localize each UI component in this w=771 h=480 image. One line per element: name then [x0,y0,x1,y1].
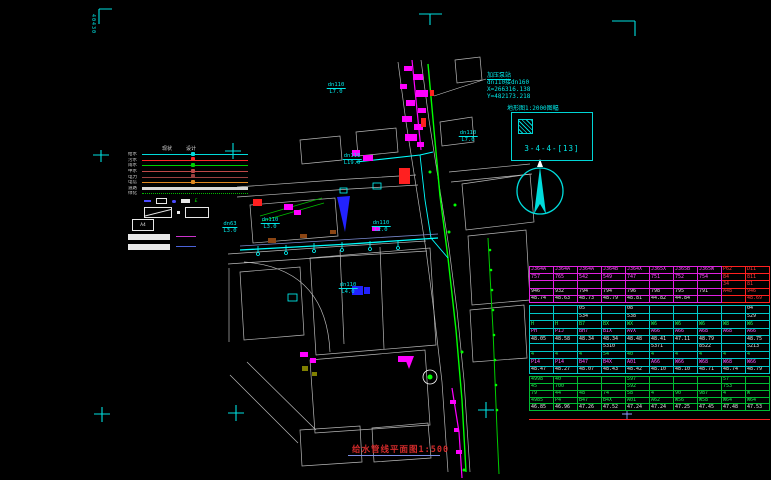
table-cell: 4 [650,351,674,359]
table-cell: 44 [554,390,578,397]
table-cell: 592 [626,384,650,391]
table-cell: J365B [674,267,698,274]
telecom-marks [302,366,317,376]
table-cell: 4 [746,351,770,359]
table-cell: P14 [554,359,578,367]
utility-lines [412,60,462,478]
table-cell [722,336,746,344]
table-cell [578,377,602,384]
table-cell [578,384,602,391]
pump-station-note: 加压泵站 dn110接dn160 X=266316.138 Y=482173.2… [487,72,530,100]
table-cell: 751 [650,274,674,281]
table-row: J364AJ364AJ364AJ364BJ364XJ365XJ365BJ365W… [530,267,770,274]
pipe-annotation: dn63L3.0 [222,221,237,234]
table-cell: 47.26 [578,404,602,411]
table-cell: 48.75 [746,336,770,344]
alert-blocks [253,90,434,206]
table-cell: W68 [722,359,746,367]
table-cell: 44.84 [674,295,698,302]
table-cell [554,313,578,321]
table-cell: 794 [578,288,602,295]
table-cell: W [746,390,770,397]
node-block-1: J364AJ364AJ364AJ364BJ364XJ365XJ365BJ365W… [529,266,770,303]
table-cell [674,343,698,351]
legend-line-sample [142,187,248,190]
table-cell: 48.41 [650,336,674,344]
table-cell [722,343,746,351]
table-cell: 48.07 [578,366,602,374]
table-cell: 47.45 [698,404,722,411]
legend-line-mark [191,180,195,184]
table-cell: 946 [530,288,554,295]
table-cell: 757 [530,274,554,281]
table-cell: B7 [578,321,602,329]
table-cell: W56 [674,397,698,404]
cad-viewport: 40430 现状 设计 给水污水雨水中水电力电信道路绿化 £ A4 [0,0,771,480]
table-cell: W66 [674,359,698,367]
table-cell: A66 [650,359,674,367]
table-cell: 90 [674,390,698,397]
pipe-size-label: dn110 [339,282,358,289]
table-cell: 46.85 [530,404,554,411]
table-cell: 57 [722,377,746,384]
table-cell: 48.10 [674,366,698,374]
table-cell: 48.34 [578,336,602,344]
sheet-reference: 3-4-4-[13] [512,144,592,153]
table-cell [722,313,746,321]
table-row: P14P14B47B4XA01A66W66W68W68W66 [530,359,770,367]
table-cell [674,384,698,391]
pipe-size-label: dn110 [261,217,280,224]
drawing-title: 给水管线平面图1:500 [352,443,449,455]
utility-clusters [284,66,462,454]
table-cell: BH7 [578,328,602,336]
pump-note-size: dn110接dn160 [487,79,529,86]
table-cell [530,343,554,351]
manhole-symbol [423,370,437,384]
pipe-length-label: L19.0 [343,160,362,166]
table-cell [650,305,674,313]
table-cell: W68 [698,359,722,367]
a4-frame-icon: A4 [132,219,154,231]
table-cell [602,384,626,391]
table-cell: 48.42 [626,366,650,374]
table-cell: 48.73 [578,295,602,302]
table-cell: 48.79 [602,295,626,302]
table-cell: 48.58 [554,336,578,344]
legend-label: 电力 [128,175,142,180]
table-cell: 05 [578,305,602,313]
table-cell [722,305,746,313]
table-cell: 4 [674,351,698,359]
legend-label: 道路 [128,186,142,191]
table-cell: 747 [626,274,650,281]
node-block-2: 050804534538529HHB7BXWXW6W6W6W8W6PHPIJBH… [529,305,770,374]
table-cell: W6 [674,321,698,329]
pipe-length-label: L7.0 [327,89,346,95]
table-cell: A68 [698,328,722,336]
table-cell: 946 [746,288,770,295]
legend-line-sample [142,160,248,161]
table-cell: A01 [626,359,650,367]
node-elevation-table: J364AJ364AJ364AJ364BJ364XJ365XJ365BJ365W… [529,266,770,411]
table-cell: 538 [626,313,650,321]
table-cell [698,313,722,321]
table-cell: J364B [602,267,626,274]
table-cell: A68 [722,328,746,336]
legend-line-sample [142,182,248,183]
pipe-length-label: L3.0 [222,228,237,234]
table-bottom-rule [529,419,770,420]
table-cell: 44.82 [650,295,674,302]
legend-line-sample [142,165,248,166]
north-arrow [517,159,563,214]
table-cell: AVX [626,328,650,336]
table-cell: 796 [626,288,650,295]
table-cell: 48.79 [698,336,722,344]
table-cell [650,384,674,391]
table-cell: PIJ [554,328,578,336]
table-row: 48.0548.5848.3448.3448.4848.4147.1148.79… [530,336,770,344]
table-cell [698,281,722,288]
table-cell: 74 [602,390,626,397]
table-cell [746,377,770,384]
legend-line-mark [191,174,195,178]
table-cell: 700 [554,384,578,391]
legend-line-sample [142,177,248,178]
table-cell: D11 [746,267,770,274]
table-cell [602,305,626,313]
table-cell: 932 [554,288,578,295]
table-cell [698,295,722,302]
table-cell [626,343,650,351]
table-cell: W8 [722,321,746,329]
table-cell [650,377,674,384]
table-cell: 54 [602,351,626,359]
node-block-3: 499840597574570059275379444874584909874W… [529,376,770,411]
table-row: 48.7448.6348.7348.7948.8144.8244.8448.69 [530,295,770,302]
table-row: 79444874584909874W [530,390,770,397]
table-cell: 597 [626,377,650,384]
table-cell: 8522 [698,343,722,351]
valve-icon [144,200,151,202]
table-cell: 79 [530,390,554,397]
legend-line-sample [142,171,248,172]
table-cell [722,295,746,302]
table-cell: J364X [626,267,650,274]
table-cell: B47 [578,397,602,404]
table-row: 75776554254974775175275484811 [530,274,770,281]
table-cell: 48.74 [722,366,746,374]
table-cell: 4 [722,351,746,359]
table-cell: W66 [746,359,770,367]
node-icon [172,200,176,204]
table-row: HHB7BXWXW6W6W6W8W6 [530,321,770,329]
pipe-annotation: dn110L4.0 [339,282,358,295]
table-cell: 5371 [650,343,674,351]
blue-line-sample [176,246,196,247]
legend-label: 给水 [128,152,142,157]
table-cell: P4 [554,397,578,404]
table-cell: 4 [530,351,554,359]
table-cell: B47 [578,359,602,367]
table-cell: BIX [602,328,626,336]
table-cell: 40 [554,377,578,384]
pipe-size-label: dn63 [222,221,237,228]
title-underline [348,455,440,456]
water-main-lines [260,64,499,474]
table-cell: J364A [554,267,578,274]
table-cell: W64 [746,397,770,404]
legend-line-mark [191,169,195,173]
pipe-size-label: dn110 [372,220,391,227]
pipe-length-label: L7.0 [459,137,478,143]
legend: 现状 设计 给水污水雨水中水电力电信道路绿化 £ A4 [128,145,248,252]
pump-note-x: X=266316.138 [487,86,530,93]
table-cell: 48.81 [626,295,650,302]
scale-bar [128,234,170,240]
legend-col-existing: 现状 [162,145,172,152]
table-cell [602,281,626,288]
table-row: 444544044444 [530,351,770,359]
table-cell [530,281,554,288]
table-cell: 752 [674,274,698,281]
table-row: 48.4748.2748.0748.4348.4248.1048.1048.71… [530,366,770,374]
legend-column-headers: 现状 设计 [128,145,248,152]
table-cell: 5213 [746,343,770,351]
table-row: PHPIJBH7BIXAVXA66A66A68A68A66 [530,328,770,336]
table-cell: W6 [698,321,722,329]
table-cell: J365X [650,267,674,274]
table-cell: 794 [602,288,626,295]
table-cell [674,281,698,288]
table-cell: 48.34 [602,336,626,344]
sheet-key-box: 3-4-4-[13] [511,112,593,161]
table-cell [674,377,698,384]
table-cell: J364A [530,267,554,274]
table-cell: 811 [746,274,770,281]
table-row: 534538529 [530,313,770,321]
table-cell: 48.10 [650,366,674,374]
legend-bar-row-2 [128,242,248,252]
pipe-annotation: dn110L7.0 [459,130,478,143]
chamber-icon [181,199,190,203]
table-cell: A66 [674,328,698,336]
legend-label: 绿化 [128,191,142,196]
scale-bar [128,244,170,250]
table-cell [650,281,674,288]
table-cell: 58 [626,390,650,397]
table-cell: WX [626,321,650,329]
table-cell [602,313,626,321]
table-cell: 4 [698,351,722,359]
table-cell: 47.11 [674,336,698,344]
table-cell [650,313,674,321]
table-cell: 48.47 [530,366,554,374]
table-cell [578,343,602,351]
table-cell: 48.63 [554,295,578,302]
legend-line-mark [191,157,195,161]
table-cell [626,281,650,288]
table-cell [554,305,578,313]
pipe-length-label: L4.0 [339,289,358,295]
table-cell: 754 [698,274,722,281]
table-cell [698,377,722,384]
table-cell: A62 [650,397,674,404]
table-cell: 84 [722,274,746,281]
table-cell: 48 [578,390,602,397]
table-cell: BX [602,321,626,329]
table-cell [698,305,722,313]
table-row: 050804 [530,305,770,313]
table-cell: 48.69 [746,295,770,302]
table-cell: 48.79 [746,366,770,374]
table-cell: H [554,321,578,329]
table-cell: B4X [602,397,626,404]
table-cell: 542 [578,274,602,281]
legend-label: 中水 [128,169,142,174]
legend-line-mark [191,163,195,167]
table-cell: A66 [746,328,770,336]
sheet-frame-label: 40430 [90,14,96,34]
pipe-annotation: dn110L7.0 [327,82,346,95]
table-cell: 549 [602,274,626,281]
table-cell: 534 [578,313,602,321]
pump-note-y: Y=482173.218 [487,93,530,100]
table-cell: W6 [746,321,770,329]
legend-line-sample [142,154,248,155]
table-cell: 48.27 [554,366,578,374]
pipe-annotation: dn110L3.0 [261,217,280,230]
table-cell: W6 [650,321,674,329]
table-row: 4985P4B47B4XA01A62W56W58W64W64 [530,397,770,404]
table-cell: 47.24 [650,404,674,411]
table-cell: 04 [746,305,770,313]
magenta-line-sample [176,236,196,237]
table-cell [530,313,554,321]
table-cell [530,305,554,313]
legend-symbol-row: £ [128,197,248,206]
table-cell: 529 [746,313,770,321]
legend-label: 电信 [128,180,142,185]
table-cell: 795 [674,288,698,295]
table-cell: 81 [746,281,770,288]
pipe-length-label: L2.0 [372,227,391,233]
table-cell: 765 [554,274,578,281]
table-cell: 4 [578,351,602,359]
table-cell: 47.52 [602,404,626,411]
legend-slope-row [128,206,248,219]
table-cell: A48 [722,288,746,295]
table-cell: 48.48 [626,336,650,344]
table-cell [674,313,698,321]
table-cell: 4 [722,390,746,397]
table-cell: 47.53 [746,404,770,411]
table-cell: 4 [554,351,578,359]
table-cell: 48.05 [530,336,554,344]
legend-col-design: 设计 [186,145,196,152]
table-cell: 47.25 [674,404,698,411]
plain-box-icon [185,207,209,218]
pipe-annotation: dn110L19.0 [343,153,362,166]
table-cell: 753 [722,384,746,391]
table-cell [554,281,578,288]
table-row: 45700592753 [530,384,770,391]
pipe-size-label: dn110 [459,130,478,137]
grid-scale-note: 地形图1:2000图幅 [507,103,559,112]
legend-label: 污水 [128,158,142,163]
table-row: 5310537185225213 [530,343,770,351]
table-cell [554,343,578,351]
legend-line-sample [142,193,248,194]
slope-box-icon [144,207,172,218]
legend-line-mark [191,152,195,156]
table-cell: 48.71 [698,366,722,374]
table-cell: 47.24 [626,404,650,411]
table-cell: 34 [722,281,746,288]
legend-label: 雨水 [128,163,142,168]
table-row: 46.8546.9647.2647.5247.2447.2447.2547.45… [530,404,770,411]
table-cell: 5310 [602,343,626,351]
table-cell [746,384,770,391]
table-row: 3481 [530,281,770,288]
hatch-square-icon [518,119,533,134]
table-cell: 48.74 [530,295,554,302]
table-cell: W64 [722,397,746,404]
legend-linetype-rows: 给水污水雨水中水电力电信道路绿化 [128,152,248,197]
table-cell: 4985 [530,397,554,404]
table-cell [674,305,698,313]
pipe-size-label: dn110 [343,153,362,160]
table-cell: 47.48 [722,404,746,411]
hydrant-icon: £ [195,198,198,204]
table-cell [602,377,626,384]
table-cell: PH [530,328,554,336]
table-row: 946932794794796798795791A48946 [530,288,770,295]
table-cell: P62 [722,267,746,274]
table-cell: 08 [626,305,650,313]
table-cell: 791 [698,288,722,295]
table-cell: H [530,321,554,329]
table-cell: J365W [698,267,722,274]
table-cell: 48.43 [602,366,626,374]
table-cell [578,281,602,288]
table-cell: A66 [650,328,674,336]
table-cell: 45 [530,384,554,391]
table-cell: 46.96 [554,404,578,411]
pipe-size-label: dn110 [327,82,346,89]
table-row: 49984059757 [530,377,770,384]
table-cell [698,384,722,391]
table-cell: J364A [578,267,602,274]
meter-box-icon [156,198,167,204]
mini-square-icon [177,211,180,214]
pipe-annotation: dn110L2.0 [372,220,391,233]
table-cell: 4998 [530,377,554,384]
pipe-length-label: L3.0 [261,224,280,230]
table-cell: P14 [530,359,554,367]
table-cell: B4X [602,359,626,367]
table-cell: 987 [698,390,722,397]
table-cell: 798 [650,288,674,295]
table-cell: 40 [626,351,650,359]
table-cell: A01 [626,397,650,404]
table-cell: W58 [698,397,722,404]
table-cell: 4 [650,390,674,397]
